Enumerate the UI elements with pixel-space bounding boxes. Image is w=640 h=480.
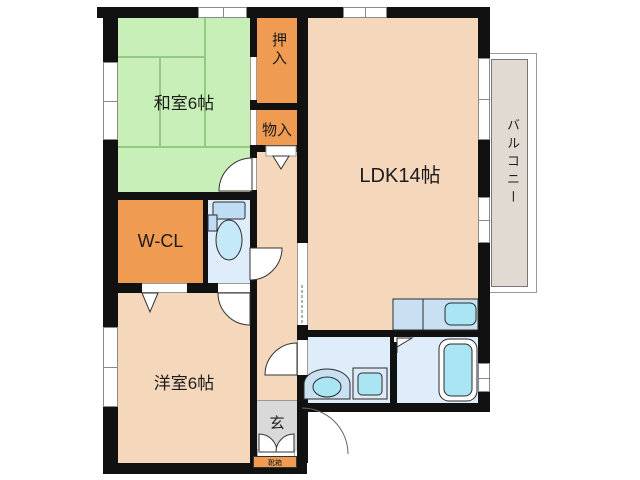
wall-wash-bath (390, 337, 397, 403)
oshiire-sliding-door (250, 57, 257, 100)
hallway (257, 152, 297, 400)
window (103, 62, 118, 140)
window (198, 7, 247, 18)
room-toilet (208, 200, 250, 283)
washroom-door-opening (297, 340, 308, 375)
tatami-line (118, 146, 250, 148)
label-oshiire: 押入 (268, 32, 289, 68)
wall-oshiire-divider (250, 103, 297, 110)
room-bathroom (397, 337, 478, 403)
window (478, 197, 490, 243)
wall-washitsu-south (103, 192, 257, 200)
floor-plan: 和室6帖 押入 物入 LDK14帖 バルコニー W-CL 洋室6帖 玄 靴箱 (0, 0, 640, 480)
label-youshitsu: 洋室6帖 (118, 369, 250, 394)
label-shoebox: 靴箱 (253, 458, 297, 468)
wall-bath-bottom (297, 403, 490, 412)
label-genkan: 玄 (257, 412, 297, 433)
wall-monoire-south (250, 145, 297, 152)
wall-hall-east (297, 18, 308, 463)
window (103, 327, 118, 407)
window (343, 7, 387, 18)
entrance-door-swing (302, 408, 348, 454)
wall-top (97, 7, 490, 18)
label-ldk: LDK14帖 (320, 159, 480, 188)
wall-wcl-toilet (203, 198, 208, 283)
label-washitsu: 和室6帖 (118, 89, 250, 114)
label-balcony: バルコニー (503, 118, 522, 208)
label-monoire: 物入 (255, 119, 299, 140)
ldk-sliding-door-pocket (297, 283, 308, 325)
youshitsu-door-opening (218, 283, 250, 293)
toilet-door-opening (250, 248, 257, 280)
wall-ldk-south (297, 330, 490, 337)
wcl-door-opening (142, 283, 187, 293)
room-washroom (308, 337, 390, 403)
ldk-sliding-door (297, 243, 308, 283)
window (478, 363, 490, 392)
tatami-line (204, 18, 206, 148)
label-wcl: W-CL (118, 231, 203, 252)
tatami-line (118, 56, 205, 58)
window (478, 58, 490, 140)
washitsu-door-opening (250, 158, 257, 190)
